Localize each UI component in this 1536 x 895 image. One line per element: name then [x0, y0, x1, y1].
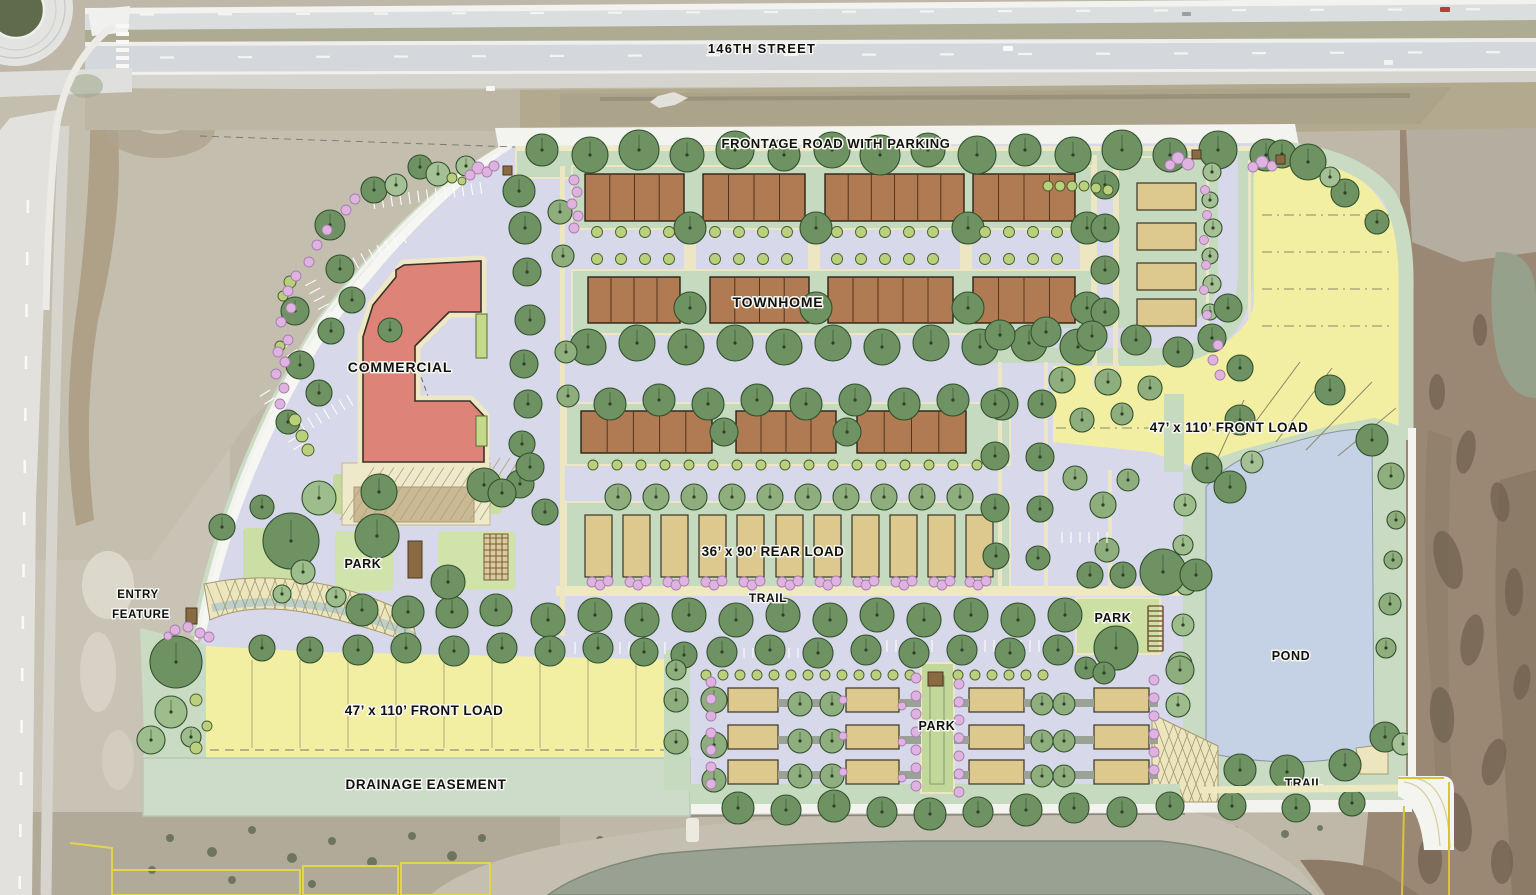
svg-text:47’ x 110’ FRONT LOAD: 47’ x 110’ FRONT LOAD	[1150, 420, 1308, 435]
svg-text:PARK: PARK	[1095, 611, 1132, 625]
svg-text:TRAIL: TRAIL	[749, 591, 787, 605]
svg-text:PARK: PARK	[345, 557, 382, 571]
svg-text:36’ x 90’ REAR LOAD: 36’ x 90’ REAR LOAD	[702, 544, 845, 559]
svg-text:ENTRY: ENTRY	[117, 589, 159, 601]
svg-text:146TH STREET: 146TH STREET	[708, 41, 816, 56]
svg-text:COMMERCIAL: COMMERCIAL	[348, 359, 452, 375]
svg-text:FRONTAGE ROAD WITH PARKING: FRONTAGE ROAD WITH PARKING	[722, 136, 951, 151]
svg-text:POND: POND	[1272, 649, 1311, 663]
svg-text:TOWNHOME: TOWNHOME	[733, 294, 824, 310]
svg-text:DRAINAGE EASEMENT: DRAINAGE EASEMENT	[346, 777, 507, 792]
svg-text:PARK: PARK	[919, 719, 956, 733]
svg-text:47’ x 110’ FRONT LOAD: 47’ x 110’ FRONT LOAD	[345, 703, 503, 718]
svg-text:FEATURE: FEATURE	[112, 609, 170, 621]
